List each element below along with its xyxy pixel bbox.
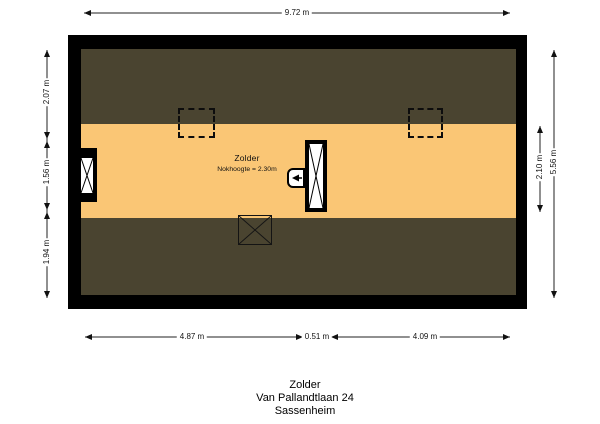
- window-icon: [68, 148, 97, 202]
- dimension-label-left-1: 2.07 m: [41, 78, 53, 106]
- plan-caption: Zolder Van Pallandtlaan 24 Sassenheim: [105, 379, 505, 418]
- dimension-label-bottom-3: 4.09 m: [410, 331, 440, 343]
- room-name: Zolder: [167, 153, 327, 163]
- window-x-icon: [81, 158, 93, 193]
- sloped-roof-area-bottom: [81, 218, 516, 295]
- arrow-left-icon: [85, 334, 92, 340]
- floorplan-outline: Zolder Nokhoogte = 2.30m: [68, 35, 527, 309]
- arrow-right-icon: [503, 334, 510, 340]
- floor-hatch-icon: [238, 215, 272, 245]
- arrow-down-icon: [537, 205, 543, 212]
- arrow-up-icon: [551, 50, 557, 57]
- staircase-icon: [305, 140, 327, 212]
- sloped-roof-area-top: [81, 49, 516, 124]
- caption-city: Sassenheim: [105, 405, 505, 418]
- skylight-icon: [178, 108, 215, 138]
- arrow-up-icon: [44, 141, 50, 148]
- floorplan-page: 9.72 m: [0, 0, 600, 424]
- dimension-label-left-2: 1.56 m: [41, 158, 53, 186]
- hatch-x-icon: [239, 216, 271, 244]
- arrow-right-icon: [503, 10, 510, 16]
- arrow-left-icon: [84, 10, 91, 16]
- arrow-up-icon: [44, 212, 50, 219]
- arrow-down-icon: [44, 291, 50, 298]
- caption-floor: Zolder: [105, 379, 505, 392]
- arrow-up-icon: [44, 50, 50, 57]
- arrow-down-icon: [44, 203, 50, 210]
- dimension-line: [80, 331, 514, 343]
- dimension-right: 2.10 m 5.56 m: [533, 46, 561, 302]
- arrow-down-icon: [44, 132, 50, 139]
- arrow-down-icon: [551, 291, 557, 298]
- dimension-bottom: 4.87 m 0.51 m 4.09 m: [80, 331, 514, 343]
- dimension-label-top-width: 9.72 m: [282, 7, 312, 19]
- dimension-label-bottom-1: 4.87 m: [177, 331, 207, 343]
- dimension-label-right-floor: 2.10 m: [534, 153, 546, 181]
- ridge-height-label: Nokhoogte = 2.30m: [167, 165, 327, 174]
- dimension-label-left-3: 1.94 m: [41, 238, 53, 266]
- arrow-up-icon: [537, 126, 543, 133]
- window-pane: [81, 158, 93, 193]
- dimension-label-bottom-2: 0.51 m: [302, 331, 332, 343]
- dimension-top: 9.72 m: [80, 7, 514, 19]
- caption-street: Van Pallandtlaan 24: [105, 392, 505, 405]
- room-label: Zolder Nokhoogte = 2.30m: [167, 153, 327, 174]
- dimension-label-right-total: 5.56 m: [548, 148, 560, 176]
- skylight-icon: [408, 108, 443, 138]
- dimension-left: 2.07 m 1.56 m 1.94 m: [40, 46, 54, 302]
